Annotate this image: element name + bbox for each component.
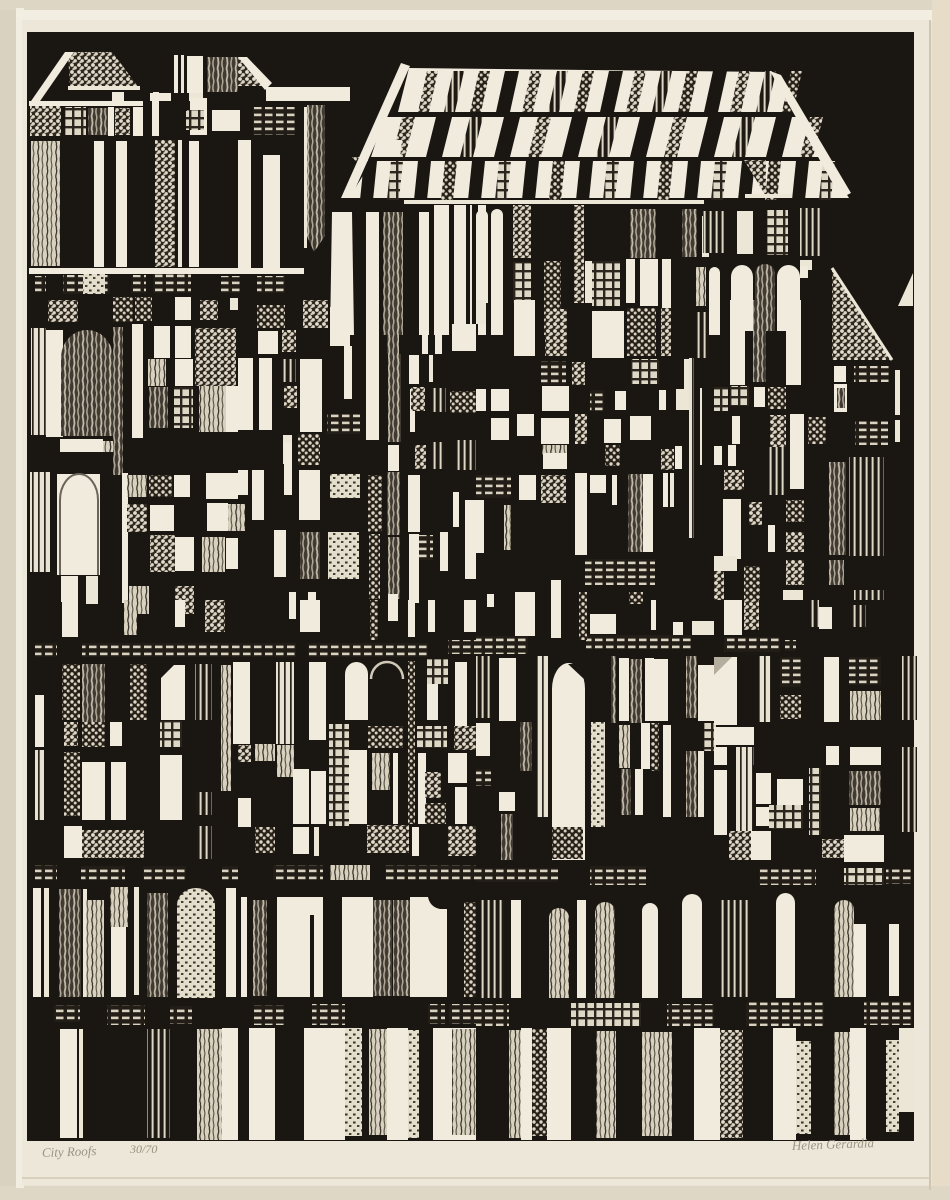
svg-text:30/70: 30/70 <box>129 1142 157 1156</box>
svg-text:Helen Gerardia: Helen Gerardia <box>791 1135 875 1153</box>
svg-text:City Roofs: City Roofs <box>42 1143 97 1160</box>
